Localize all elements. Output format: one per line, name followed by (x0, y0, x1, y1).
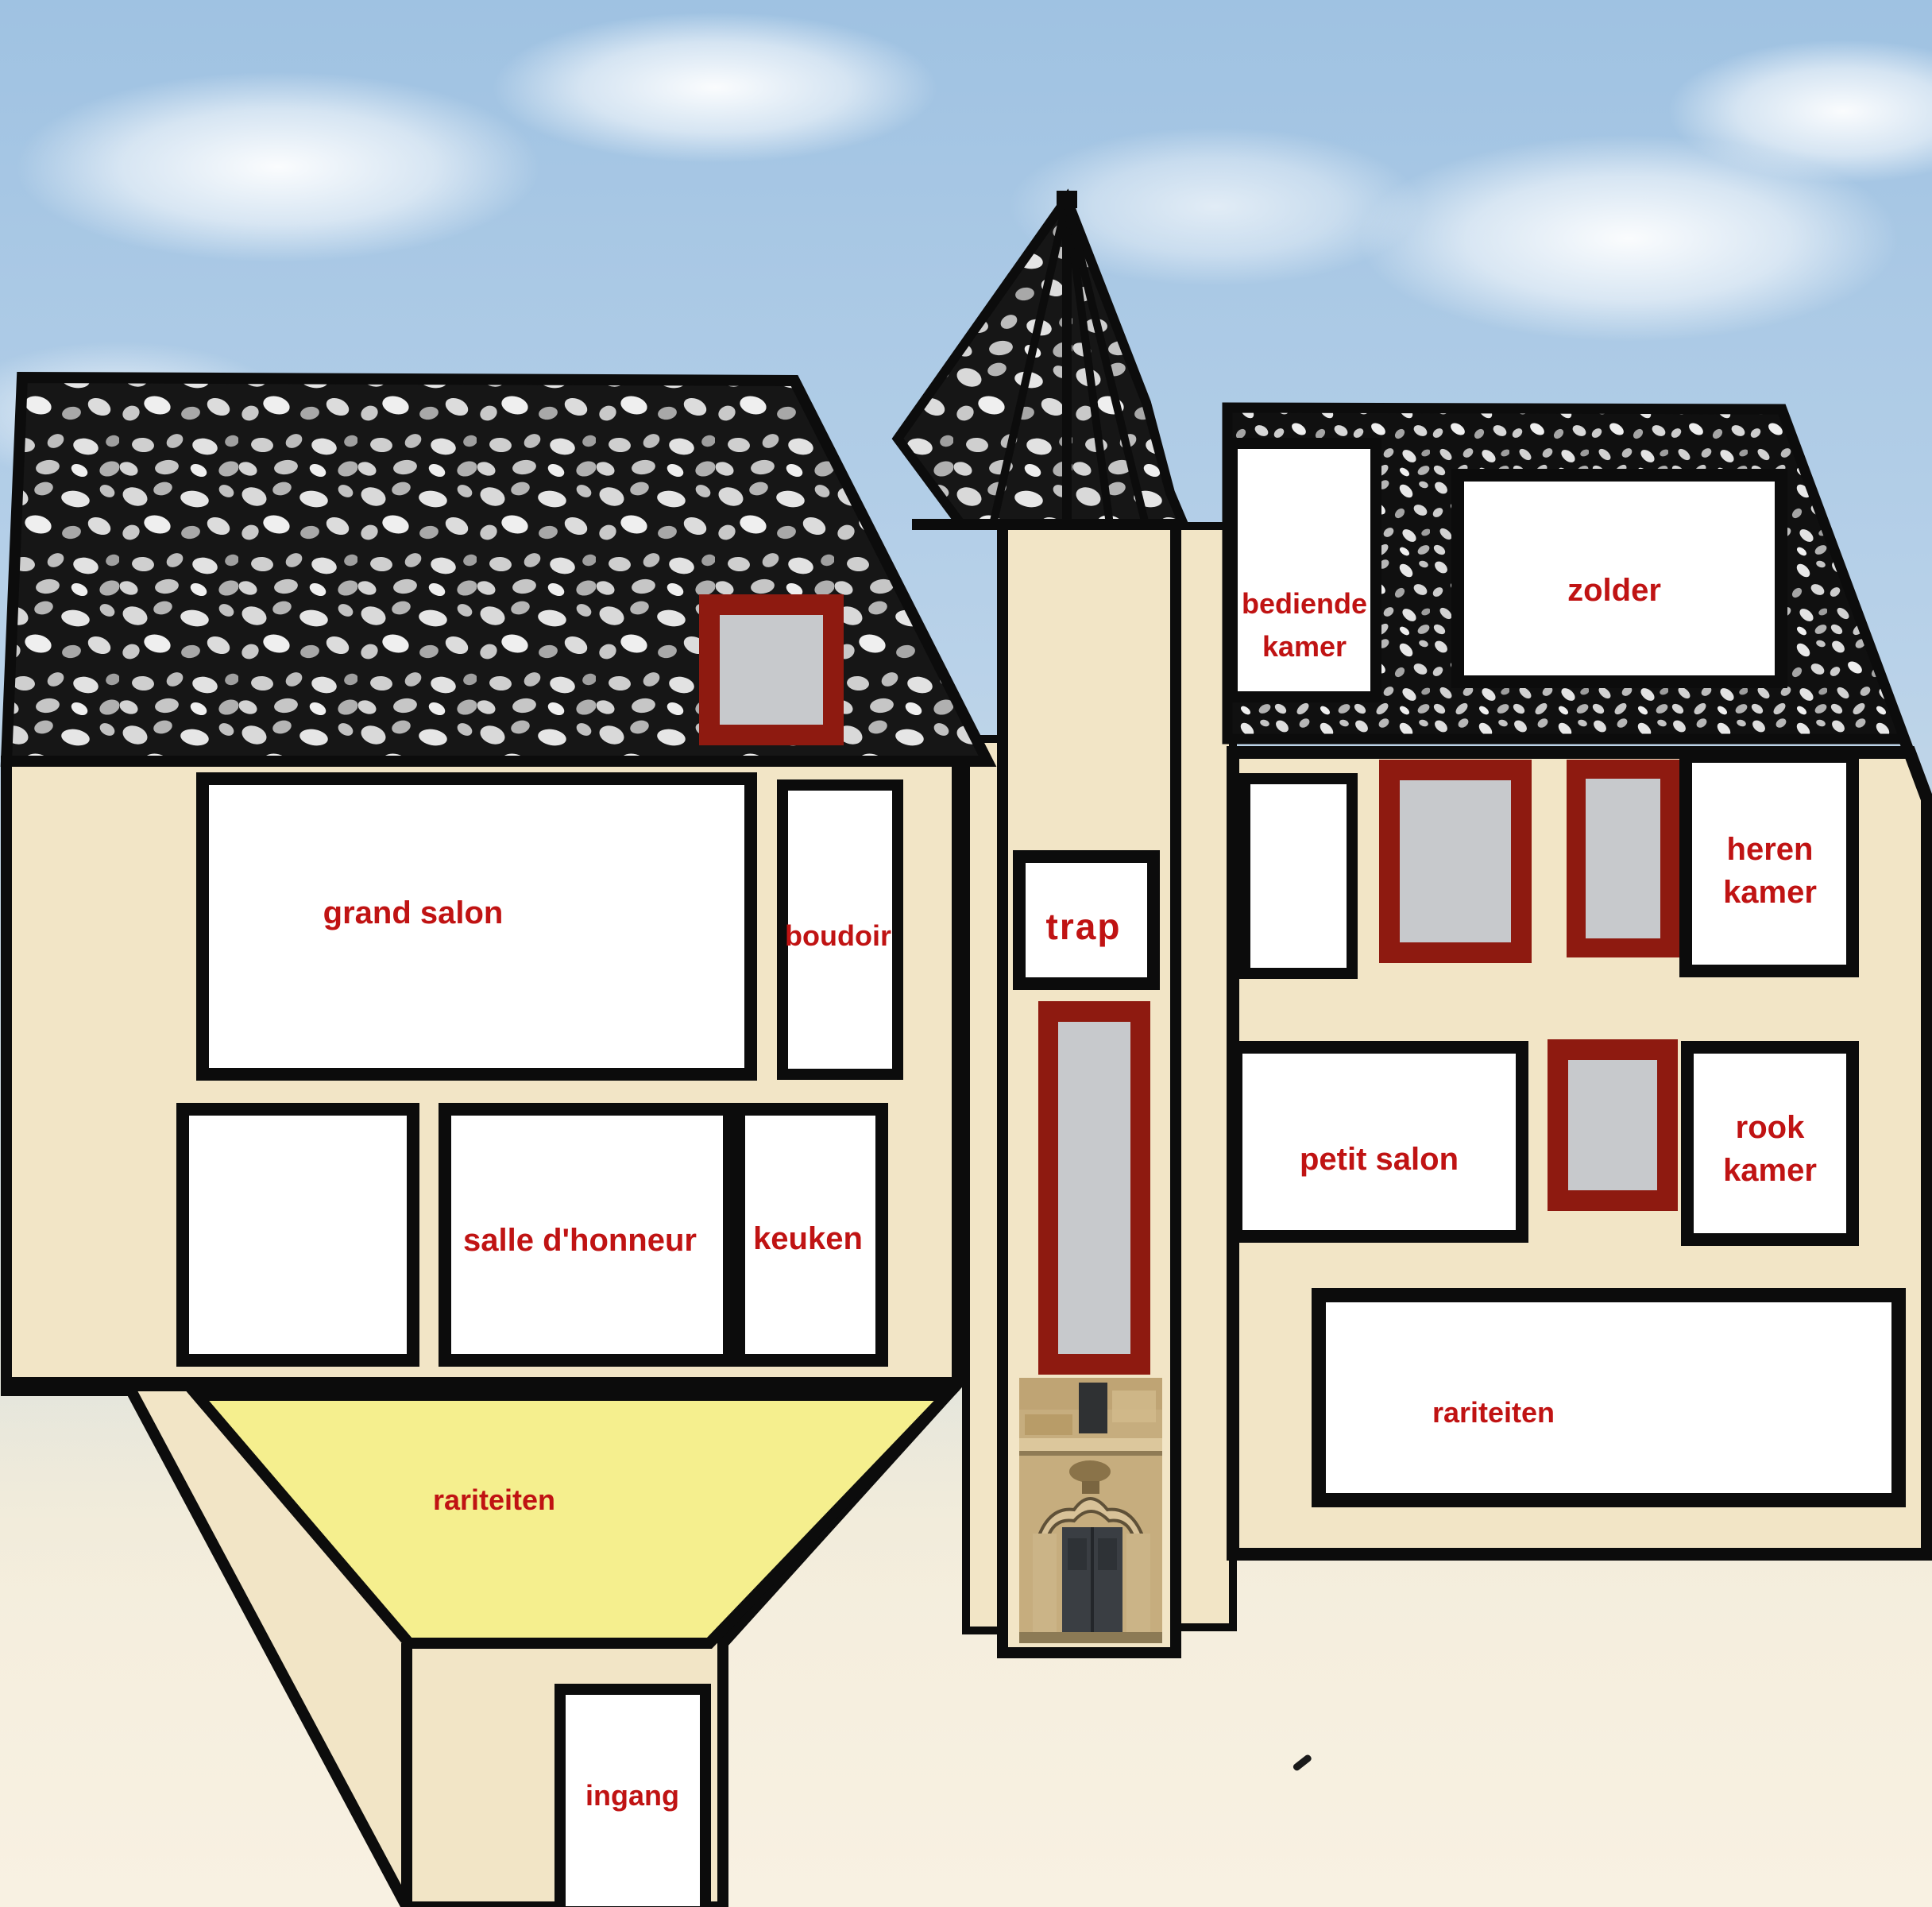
label-keuken: keuken (753, 1221, 863, 1256)
dormer-window-glass (720, 615, 823, 725)
label-bediende-kamer-line2: kamer (1262, 630, 1347, 663)
label-rariteiten-right: rariteiten (1432, 1396, 1555, 1429)
cloud (16, 72, 540, 262)
label-trap: trap (1046, 906, 1122, 947)
label-heren-kamer-line1: heren (1727, 832, 1814, 867)
label-petit-salon: petit salon (1300, 1142, 1459, 1177)
label-rariteiten-left: rariteiten (433, 1483, 555, 1516)
diagram-canvas: grand salon boudoir salle d'honneur keuk… (0, 0, 1932, 1907)
label-salle-dhonneur: salle d'honneur (463, 1223, 697, 1258)
window-glass-middle (1568, 1060, 1657, 1190)
label-grand-salon: grand salon (323, 895, 504, 930)
tower-window-glass (1058, 1022, 1130, 1354)
cloud (493, 12, 937, 163)
label-boudoir: boudoir (785, 919, 891, 952)
label-rook-kamer-line1: rook (1736, 1110, 1805, 1145)
museum-building-cross-section: grand salon boudoir salle d'honneur keuk… (0, 0, 1932, 1907)
room-unlabeled-left (183, 1109, 413, 1360)
label-zolder: zolder (1567, 573, 1661, 608)
window-glass-upper-2 (1586, 779, 1660, 938)
label-ingang: ingang (585, 1779, 679, 1812)
label-heren-kamer-line2: kamer (1723, 875, 1817, 910)
label-bediende-kamer-line1: bediende (1242, 587, 1367, 620)
entrance-door-photo (1019, 1378, 1162, 1643)
room-rariteiten-right[interactable] (1319, 1295, 1899, 1500)
window-glass-upper-1 (1400, 780, 1511, 942)
room-unlabeled-right (1245, 779, 1352, 973)
label-rook-kamer-line2: kamer (1723, 1153, 1817, 1188)
